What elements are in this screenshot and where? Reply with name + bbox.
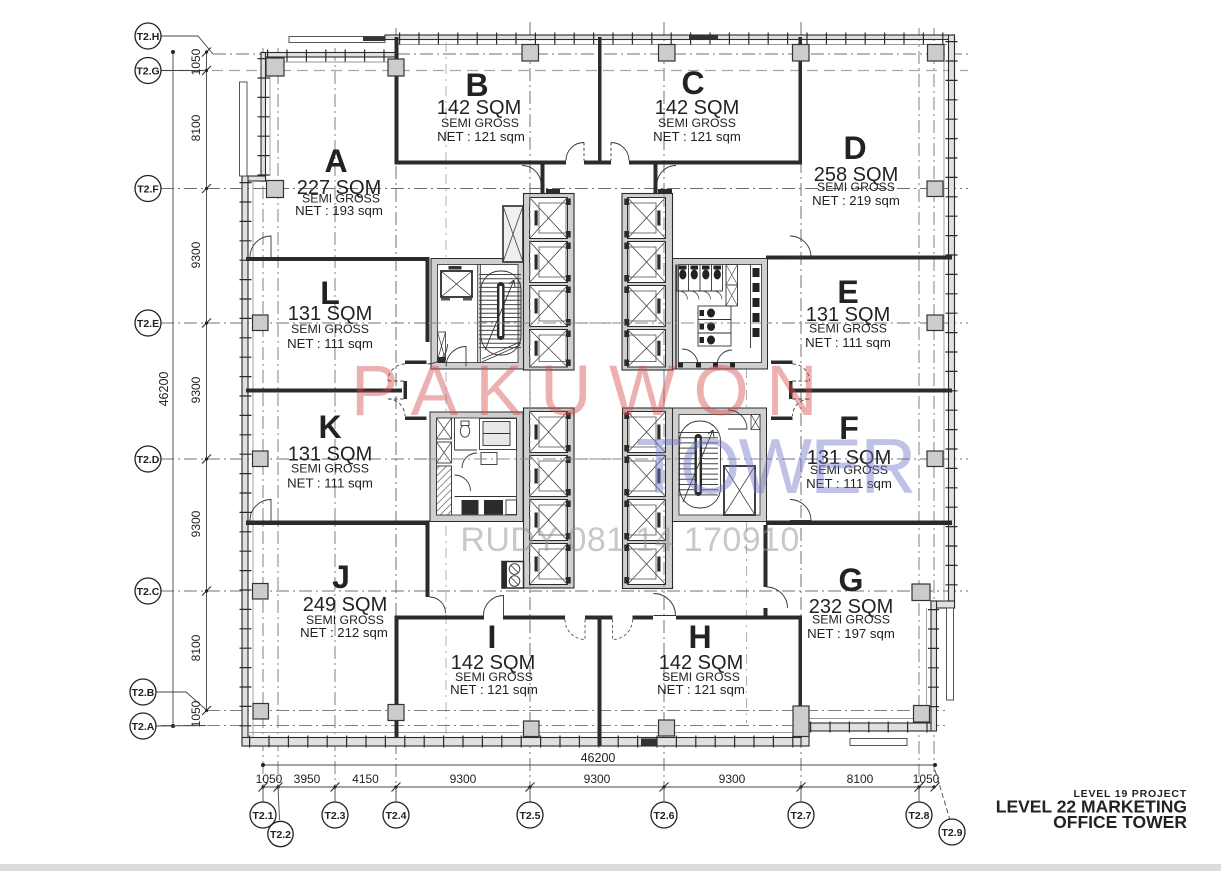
svg-text:NET : 197 sqm: NET : 197 sqm [807, 626, 895, 641]
svg-text:T2.A: T2.A [132, 721, 155, 733]
svg-text:SEMI GROSS: SEMI GROSS [291, 322, 369, 336]
svg-text:K: K [318, 409, 341, 445]
svg-text:SEMI GROSS: SEMI GROSS [817, 180, 895, 194]
svg-text:T2.8: T2.8 [908, 810, 929, 822]
svg-text:A: A [324, 143, 347, 179]
svg-text:NET : 212 sqm: NET : 212 sqm [300, 625, 388, 640]
svg-text:9300: 9300 [189, 241, 203, 268]
svg-text:9300: 9300 [189, 376, 203, 403]
svg-text:T2.4: T2.4 [385, 810, 406, 822]
svg-text:D: D [843, 130, 866, 166]
svg-text:SEMI GROSS: SEMI GROSS [291, 462, 369, 476]
svg-text:SEMI GROSS: SEMI GROSS [809, 322, 887, 336]
svg-text:NET : 121 sqm: NET : 121 sqm [437, 129, 525, 144]
svg-text:T2.6: T2.6 [653, 810, 674, 822]
svg-text:RUDY 081 14 170910: RUDY 081 14 170910 [460, 521, 799, 559]
svg-text:T2.3: T2.3 [324, 810, 345, 822]
svg-text:SEMI GROSS: SEMI GROSS [658, 116, 736, 130]
svg-text:T2.B: T2.B [132, 687, 155, 699]
svg-text:9300: 9300 [189, 510, 203, 537]
svg-text:3950: 3950 [294, 772, 321, 786]
svg-text:4150: 4150 [352, 772, 379, 786]
svg-text:G: G [839, 562, 864, 598]
svg-text:T2.1: T2.1 [252, 810, 273, 822]
svg-text:NET : 121 sqm: NET : 121 sqm [657, 682, 745, 697]
svg-text:NET : 219 sqm: NET : 219 sqm [812, 193, 900, 208]
svg-text:8100: 8100 [847, 772, 874, 786]
svg-text:T2.7: T2.7 [790, 810, 811, 822]
svg-text:9300: 9300 [450, 772, 477, 786]
svg-text:T2.F: T2.F [137, 184, 159, 196]
svg-text:9300: 9300 [719, 772, 746, 786]
svg-text:1050: 1050 [913, 772, 940, 786]
svg-text:1050: 1050 [189, 48, 203, 75]
svg-text:PAKUWON: PAKUWON [351, 352, 835, 431]
svg-text:8100: 8100 [189, 634, 203, 661]
svg-text:46200: 46200 [581, 751, 616, 765]
svg-text:9300: 9300 [584, 772, 611, 786]
svg-text:SEMI GROSS: SEMI GROSS [441, 116, 519, 130]
svg-text:TOWER: TOWER [636, 422, 915, 510]
svg-text:T2.2: T2.2 [270, 829, 291, 841]
svg-text:NET : 111 sqm: NET : 111 sqm [805, 335, 891, 350]
svg-text:NET : 193 sqm: NET : 193 sqm [295, 203, 383, 218]
svg-text:1050: 1050 [189, 700, 203, 727]
svg-text:T2.D: T2.D [137, 454, 160, 466]
svg-text:T2.G: T2.G [136, 66, 159, 78]
svg-text:NET : 111 sqm: NET : 111 sqm [287, 336, 373, 351]
svg-text:J: J [332, 559, 350, 595]
svg-text:NET : 121 sqm: NET : 121 sqm [653, 129, 741, 144]
svg-text:NET : 111 sqm: NET : 111 sqm [287, 476, 373, 491]
svg-text:T2.H: T2.H [137, 31, 160, 43]
svg-text:T2.5: T2.5 [519, 810, 540, 822]
svg-text:46200: 46200 [157, 372, 171, 407]
svg-text:H: H [688, 619, 711, 655]
svg-text:T2.E: T2.E [137, 318, 159, 330]
svg-text:NET : 121 sqm: NET : 121 sqm [450, 682, 538, 697]
svg-text:T2.9: T2.9 [941, 827, 962, 839]
svg-text:T2.C: T2.C [137, 586, 160, 598]
svg-text:C: C [681, 65, 704, 101]
svg-text:SEMI GROSS: SEMI GROSS [812, 613, 890, 627]
svg-text:I: I [488, 619, 497, 655]
svg-text:8100: 8100 [189, 114, 203, 141]
svg-text:OFFICE TOWER: OFFICE TOWER [1053, 812, 1187, 832]
svg-text:1050: 1050 [256, 772, 283, 786]
